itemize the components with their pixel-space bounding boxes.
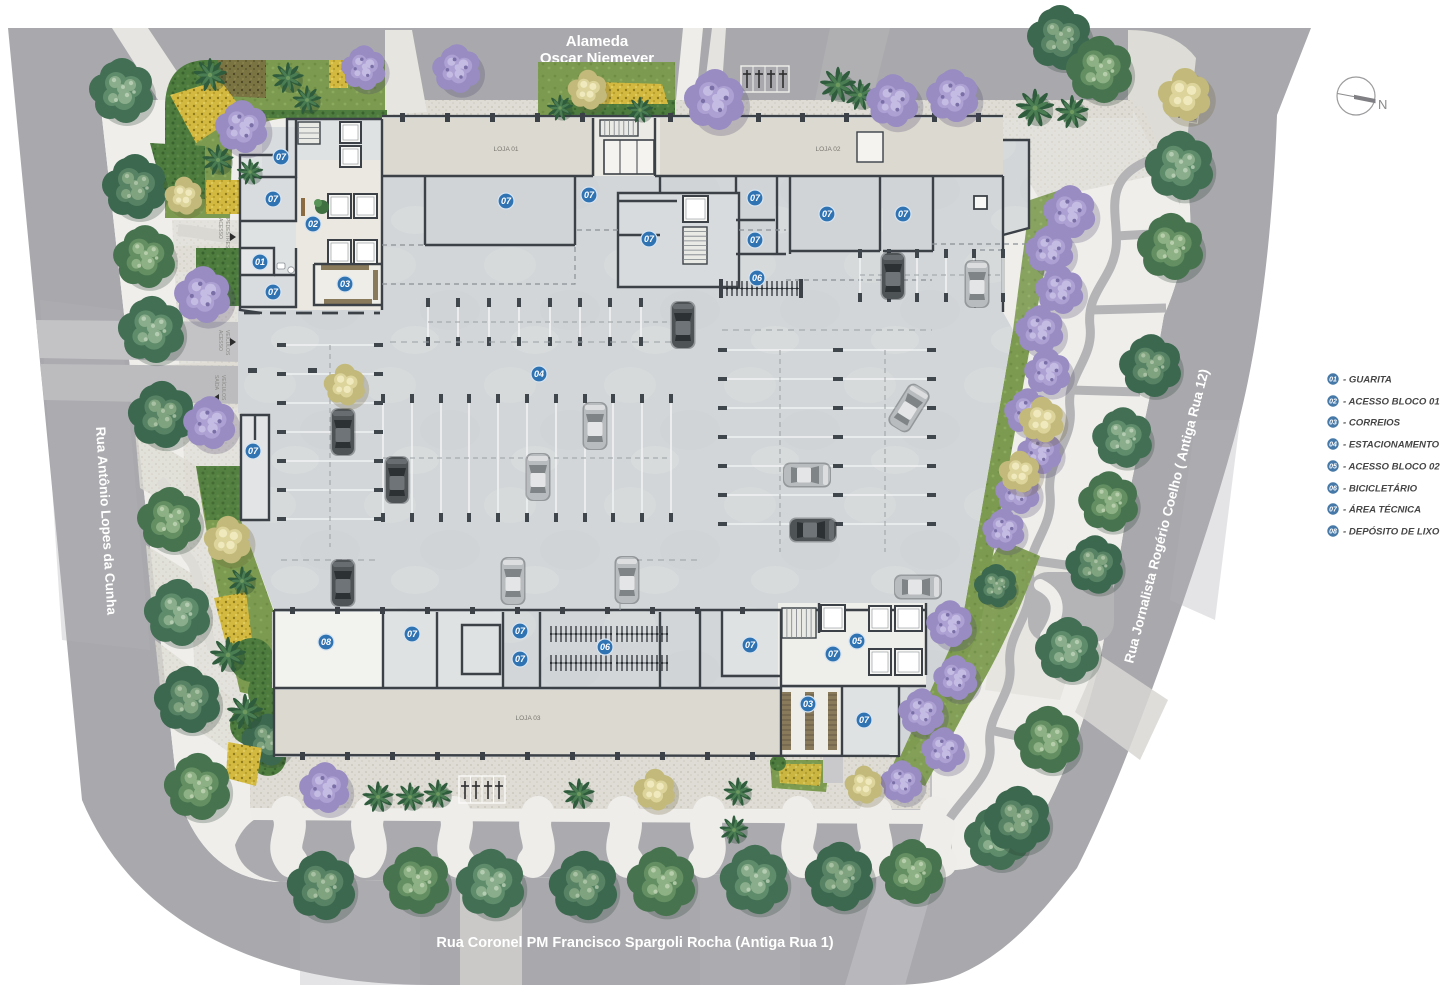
svg-text:07: 07 (515, 654, 526, 664)
svg-text:LOJA 02: LOJA 02 (816, 146, 841, 153)
svg-text:07: 07 (750, 193, 761, 203)
svg-text:PEDESTRES: PEDESTRES (224, 218, 230, 249)
svg-text:07: 07 (898, 209, 909, 219)
svg-text:07: 07 (644, 234, 655, 244)
svg-text:N: N (1378, 97, 1387, 112)
svg-text:- GUARITA: - GUARITA (1343, 375, 1392, 386)
svg-text:- ESTACIONAMENTO: - ESTACIONAMENTO (1343, 440, 1440, 451)
svg-text:07: 07 (268, 287, 279, 297)
svg-text:Rua Coronel PM Francisco Sparg: Rua Coronel PM Francisco Spargoli Rocha … (436, 935, 833, 951)
svg-text:02: 02 (1329, 399, 1337, 406)
svg-text:04: 04 (1329, 442, 1337, 449)
svg-text:- DEPÓSITO DE LIXO: - DEPÓSITO DE LIXO (1343, 526, 1440, 538)
svg-text:- ACESSO BLOCO 02: - ACESSO BLOCO 02 (1343, 462, 1440, 473)
svg-text:07: 07 (745, 640, 756, 650)
svg-text:07: 07 (515, 626, 526, 636)
svg-text:03: 03 (803, 699, 813, 709)
svg-text:03: 03 (340, 279, 350, 289)
svg-text:LOJA 01: LOJA 01 (494, 146, 519, 153)
svg-text:07: 07 (501, 196, 512, 206)
svg-text:05: 05 (852, 636, 863, 646)
svg-text:04: 04 (534, 369, 544, 379)
svg-text:08: 08 (321, 637, 331, 647)
svg-text:01: 01 (255, 257, 265, 267)
svg-text:VEÍCULOS: VEÍCULOS (224, 330, 231, 356)
svg-text:- ACESSO BLOCO 01: - ACESSO BLOCO 01 (1343, 397, 1440, 408)
svg-text:07: 07 (248, 446, 259, 456)
svg-text:06: 06 (1329, 486, 1337, 493)
svg-text:07: 07 (276, 152, 287, 162)
svg-text:07: 07 (584, 190, 595, 200)
svg-text:07: 07 (750, 235, 761, 245)
svg-text:Alameda: Alameda (566, 33, 629, 50)
svg-text:06: 06 (752, 273, 763, 283)
svg-text:07: 07 (407, 629, 418, 639)
svg-text:07: 07 (268, 194, 279, 204)
svg-text:LOJA 03: LOJA 03 (516, 715, 541, 722)
svg-text:VEÍCULOS: VEÍCULOS (220, 375, 227, 401)
svg-text:03: 03 (1329, 420, 1337, 427)
svg-text:06: 06 (600, 642, 611, 652)
svg-text:08: 08 (1329, 529, 1337, 536)
svg-text:01: 01 (1329, 377, 1337, 384)
svg-text:- BICICLETÁRIO: - BICICLETÁRIO (1343, 484, 1418, 495)
svg-text:05: 05 (1329, 464, 1337, 471)
svg-text:07: 07 (822, 209, 833, 219)
svg-text:07: 07 (1329, 507, 1338, 514)
svg-text:SAÍDA: SAÍDA (213, 375, 220, 391)
svg-text:07: 07 (859, 715, 870, 725)
svg-text:ACESSO: ACESSO (217, 330, 223, 351)
svg-text:- CORREIOS: - CORREIOS (1343, 418, 1401, 429)
svg-text:07: 07 (828, 649, 839, 659)
svg-text:02: 02 (308, 219, 318, 229)
svg-text:- ÁREA TÉCNICA: - ÁREA TÉCNICA (1343, 505, 1421, 516)
svg-text:ACESSO: ACESSO (217, 218, 223, 239)
